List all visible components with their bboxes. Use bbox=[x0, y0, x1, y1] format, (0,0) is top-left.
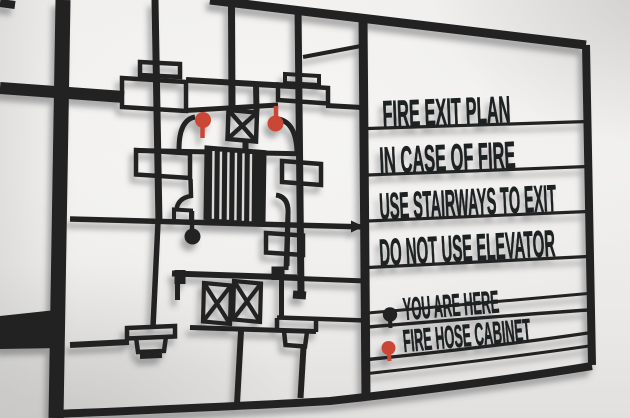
svg-text:FIRE EXIT PLAN: FIRE EXIT PLAN bbox=[382, 88, 512, 135]
svg-text:IN CASE OF FIRE: IN CASE OF FIRE bbox=[379, 134, 517, 182]
svg-text:DO NOT USE ELEVATOR: DO NOT USE ELEVATOR bbox=[378, 222, 556, 273]
svg-text:USE STAIRWAYS TO EXIT: USE STAIRWAYS TO EXIT bbox=[378, 177, 557, 228]
